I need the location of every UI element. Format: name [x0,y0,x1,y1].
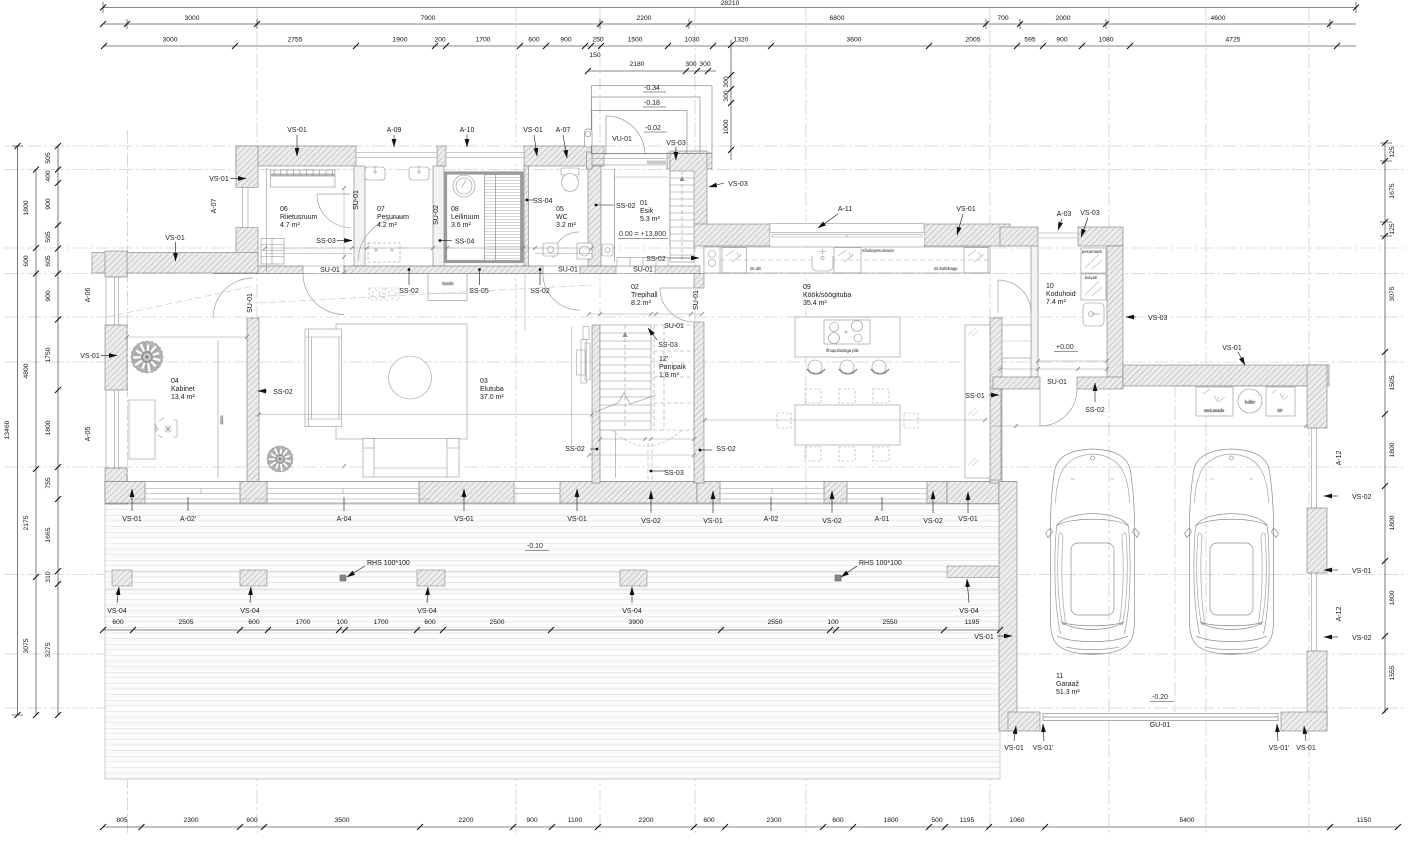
svg-text:755: 755 [45,477,52,488]
svg-text:VS-01: VS-01 [454,516,474,523]
svg-text:5400: 5400 [1180,817,1195,824]
svg-text:RHS 100*100: RHS 100*100 [859,560,902,567]
svg-text:VS-01: VS-01 [122,516,142,523]
svg-text:2755: 2755 [288,37,303,44]
svg-text:4600: 4600 [1211,15,1226,22]
svg-text:int.külmkapp: int.külmkapp [934,266,958,271]
svg-text:100: 100 [827,619,838,626]
svg-text:600: 600 [23,255,30,266]
svg-text:6800: 6800 [830,15,845,22]
svg-text:VS-01: VS-01 [287,127,307,134]
svg-text:VS-01: VS-01 [1004,745,1024,752]
svg-text:VS-04: VS-04 [622,608,642,615]
svg-text:Elutuba: Elutuba [480,386,504,393]
svg-text:8.2 m²: 8.2 m² [631,300,652,307]
svg-text:kuivati: kuivati [1085,275,1097,280]
svg-text:Trepihall: Trepihall [631,292,658,299]
svg-text:1080: 1080 [1099,37,1114,44]
svg-text:-0.18: -0.18 [644,100,660,107]
svg-text:SS-02: SS-02 [565,446,585,453]
svg-text:08: 08 [451,206,459,213]
svg-text:4.7 m²: 4.7 m² [280,222,301,229]
svg-text:3075: 3075 [1389,286,1396,301]
svg-text:900: 900 [560,37,571,44]
svg-text:VS-04: VS-04 [417,608,437,615]
svg-text:3.6 m²: 3.6 m² [451,222,472,229]
svg-text:A-11: A-11 [838,206,852,213]
svg-text:51.3 m²: 51.3 m² [1056,689,1080,696]
svg-text:06: 06 [280,206,288,213]
svg-text:A-01: A-01 [875,516,890,523]
svg-text:07: 07 [377,206,385,213]
svg-text:VS-01: VS-01 [567,516,587,523]
svg-text:A-09: A-09 [387,127,402,134]
svg-text:3275: 3275 [45,642,52,657]
svg-text:4800: 4800 [23,363,30,378]
svg-text:3900: 3900 [629,619,644,626]
svg-text:A-02': A-02' [180,516,196,523]
svg-text:03: 03 [480,378,488,385]
svg-text:1320: 1320 [734,37,749,44]
svg-text:3600: 3600 [847,37,862,44]
svg-text:Esik: Esik [640,208,654,215]
svg-text:1.8 m²: 1.8 m² [659,372,680,379]
svg-text:SU-01: SU-01 [664,323,684,330]
svg-text:VS-02: VS-02 [641,518,661,525]
svg-text:SS-02: SS-02 [716,446,736,453]
svg-text:10: 10 [1046,283,1054,290]
svg-text:300: 300 [723,90,730,101]
svg-text:VS-03: VS-03 [1080,210,1100,217]
svg-text:1060: 1060 [1010,817,1025,824]
svg-text:A-04: A-04 [337,516,352,523]
svg-text:900: 900 [45,290,52,301]
svg-text:2505: 2505 [179,619,194,626]
svg-text:1555: 1555 [1389,665,1396,680]
svg-text:4.2 m²: 4.2 m² [377,222,398,229]
svg-text:SS-02: SS-02 [399,288,419,295]
svg-text:3000: 3000 [185,15,200,22]
svg-text:Pesuruum: Pesuruum [377,214,409,221]
svg-text:VS-01: VS-01 [523,127,543,134]
svg-text:-0.20: -0.20 [1152,694,1168,701]
svg-text:RHS 100*100: RHS 100*100 [367,560,410,567]
svg-text:2000: 2000 [1056,15,1071,22]
svg-text:300: 300 [685,61,696,68]
svg-text:900: 900 [1056,37,1067,44]
svg-text:2550: 2550 [768,619,783,626]
svg-text:VS-01: VS-01 [165,235,185,242]
svg-text:Leiliruum: Leiliruum [451,214,480,221]
svg-text:2300: 2300 [184,817,199,824]
svg-text:2300: 2300 [767,817,782,824]
svg-text:VS-02: VS-02 [1352,494,1372,501]
svg-text:2180: 2180 [630,61,645,68]
svg-text:600: 600 [112,619,123,626]
svg-text:11: 11 [1056,673,1063,680]
svg-text:600: 600 [248,619,259,626]
svg-text:2550: 2550 [883,619,898,626]
svg-text:3.2 m²: 3.2 m² [556,222,577,229]
svg-text:310: 310 [45,571,52,582]
svg-text:õhupuhastiga pliit: õhupuhastiga pliit [826,348,859,353]
svg-text:1150: 1150 [1357,817,1372,824]
svg-text:150: 150 [589,52,600,59]
svg-text:vent.seade: vent.seade [1204,408,1225,413]
svg-text:1030: 1030 [685,37,700,44]
svg-text:VS-04: VS-04 [107,608,127,615]
svg-text:2200: 2200 [459,817,474,824]
svg-text:SU-01: SU-01 [558,267,578,274]
svg-text:VS-01: VS-01 [958,516,978,523]
svg-text:100: 100 [336,619,347,626]
svg-text:VS-02: VS-02 [923,518,943,525]
svg-text:09: 09 [803,284,811,291]
svg-text:VS-01: VS-01 [209,176,229,183]
svg-text:VS-01: VS-01 [1352,568,1372,575]
svg-text:SS-03: SS-03 [658,342,678,349]
svg-text:2005: 2005 [966,37,981,44]
svg-text:01: 01 [640,200,648,207]
svg-text:SU-01: SU-01 [353,190,360,210]
svg-text:1800: 1800 [1389,442,1396,457]
svg-text:Köök/söögituba: Köök/söögituba [803,292,851,299]
svg-text:13.4 m²: 13.4 m² [171,394,195,401]
svg-text:VS-02: VS-02 [822,518,842,525]
svg-text:int.ahi: int.ahi [750,266,761,271]
svg-text:1900: 1900 [393,37,408,44]
svg-text:SS-02: SS-02 [646,256,666,263]
svg-text:VS-01: VS-01 [956,206,976,213]
svg-text:1800: 1800 [23,200,30,215]
svg-text:400: 400 [45,170,52,181]
svg-text:SP: SP [1277,408,1283,413]
svg-text:3075: 3075 [23,638,30,653]
svg-text:700: 700 [997,15,1008,22]
svg-text:605: 605 [45,255,52,266]
svg-text:3000: 3000 [163,37,178,44]
svg-text:A-12: A-12 [1336,451,1343,466]
svg-text:1195: 1195 [965,619,980,626]
svg-text:VS-01: VS-01 [1222,345,1242,352]
svg-text:VS-01: VS-01 [80,353,100,360]
svg-text:A-12: A-12 [1336,607,1343,622]
svg-text:-0.02: -0.02 [645,125,661,132]
svg-text:VS-03: VS-03 [666,140,686,147]
svg-text:SU-01: SU-01 [247,293,254,313]
svg-text:7900: 7900 [421,15,436,22]
svg-text:2500: 2500 [490,619,505,626]
svg-text:1100: 1100 [568,817,583,824]
svg-text:A-06: A-06 [85,288,92,303]
svg-text:-0.10: -0.10 [527,543,543,550]
svg-text:pesumasin: pesumasin [1082,249,1103,254]
svg-text:A-05: A-05 [85,427,92,442]
svg-text:7.4 m²: 7.4 m² [1046,299,1067,306]
svg-text:2175: 2175 [23,515,30,530]
svg-text:3500: 3500 [335,817,350,824]
svg-text:500: 500 [931,817,942,824]
svg-text:VS-01': VS-01' [1269,745,1290,752]
svg-text:Garaaž: Garaaž [1056,681,1079,688]
svg-text:VS-02: VS-02 [1352,635,1372,642]
svg-text:boiler: boiler [1245,400,1256,405]
svg-text:600: 600 [703,817,714,824]
svg-text:SU-01: SU-01 [693,290,700,310]
svg-text:kamin: kamin [442,281,454,286]
svg-text:SU-02: SU-02 [433,205,440,225]
svg-text:125: 125 [1389,223,1396,234]
svg-text:600: 600 [528,37,539,44]
svg-text:1700: 1700 [374,619,389,626]
svg-text:SS-04: SS-04 [533,198,553,205]
svg-text:4725: 4725 [1226,37,1241,44]
svg-text:300: 300 [723,76,730,87]
svg-text:02: 02 [631,284,639,291]
svg-text:1700: 1700 [296,619,311,626]
svg-text:A-03: A-03 [1057,211,1072,218]
svg-text:3300: 3300 [219,415,224,425]
svg-text:SU-01: SU-01 [1047,379,1067,386]
svg-text:37.0 m²: 37.0 m² [480,394,504,401]
svg-text:1700: 1700 [476,37,491,44]
svg-text:1500: 1500 [628,37,643,44]
svg-text:1800: 1800 [1389,590,1396,605]
svg-text:35.4 m²: 35.4 m² [803,300,827,307]
svg-text:SU-01: SU-01 [633,267,653,274]
svg-text:VU-01: VU-01 [612,136,632,143]
svg-text:SS-02: SS-02 [616,203,636,210]
svg-text:A-07: A-07 [211,199,218,214]
svg-text:600: 600 [246,817,257,824]
svg-text:A-07: A-07 [556,127,571,134]
svg-text:-0.34: -0.34 [644,85,660,92]
svg-text:200: 200 [434,37,445,44]
svg-text:250: 250 [592,37,603,44]
svg-text:5.3 m²: 5.3 m² [640,216,661,223]
svg-text:Kabinet: Kabinet [171,386,195,393]
svg-text:1750: 1750 [45,347,52,362]
svg-text:900: 900 [45,198,52,209]
svg-text:VS-04: VS-04 [959,608,979,615]
svg-text:SS-02: SS-02 [530,288,550,295]
svg-text:595: 595 [45,231,52,242]
svg-text:505: 505 [45,152,52,163]
svg-text:1800: 1800 [45,420,52,435]
svg-text:2200: 2200 [639,817,654,824]
svg-text:SS-02: SS-02 [1085,407,1105,414]
svg-text:1665: 1665 [45,527,52,542]
svg-text:A-02: A-02 [764,516,779,523]
svg-text:WC: WC [556,214,568,221]
svg-text:1195: 1195 [960,817,975,824]
svg-text:125: 125 [1389,146,1396,157]
svg-text:A-10: A-10 [460,127,475,134]
svg-text:SS-04: SS-04 [455,239,475,246]
svg-text:04: 04 [171,378,179,385]
svg-text:VS-01': VS-01' [1033,745,1054,752]
svg-text:1000: 1000 [723,119,730,134]
svg-text:VS-03: VS-03 [728,181,748,188]
svg-text:12': 12' [659,356,668,363]
svg-text:Panipaik: Panipaik [659,364,686,371]
svg-text:300: 300 [699,61,710,68]
svg-text:600: 600 [832,817,843,824]
svg-text:Riietusruum: Riietusruum [280,214,318,221]
svg-text:2200: 2200 [637,15,652,22]
svg-text:nõudepesumasin: nõudepesumasin [862,248,895,253]
svg-text:VS-01: VS-01 [974,634,994,641]
svg-text:SS-01: SS-01 [965,393,985,400]
svg-text:600: 600 [424,619,435,626]
svg-text:SS-02: SS-02 [273,389,293,396]
svg-text:805: 805 [116,817,127,824]
svg-text:1800: 1800 [884,817,899,824]
svg-text:595: 595 [1024,37,1035,44]
svg-text:0.00 = +13,800: 0.00 = +13,800 [619,231,666,238]
svg-text:Koduhoid: Koduhoid [1046,291,1076,298]
svg-text:28210: 28210 [721,0,740,7]
svg-text:SU-01: SU-01 [320,267,340,274]
svg-text:1800: 1800 [1389,515,1396,530]
svg-text:SS-03: SS-03 [316,238,336,245]
svg-text:SS-03: SS-03 [664,470,684,477]
svg-text:13460: 13460 [4,420,11,439]
svg-text:VS-03: VS-03 [1148,315,1168,322]
svg-text:VS-01: VS-01 [703,518,723,525]
svg-text:1675: 1675 [1389,183,1396,198]
svg-text:VS-01: VS-01 [1296,745,1316,752]
svg-text:900: 900 [526,817,537,824]
svg-text:05: 05 [556,206,564,213]
svg-text:VS-04: VS-04 [240,608,260,615]
svg-text:GU-01: GU-01 [1150,722,1171,729]
svg-text:1505: 1505 [1389,375,1396,390]
svg-text:+0.00: +0.00 [1056,344,1074,351]
